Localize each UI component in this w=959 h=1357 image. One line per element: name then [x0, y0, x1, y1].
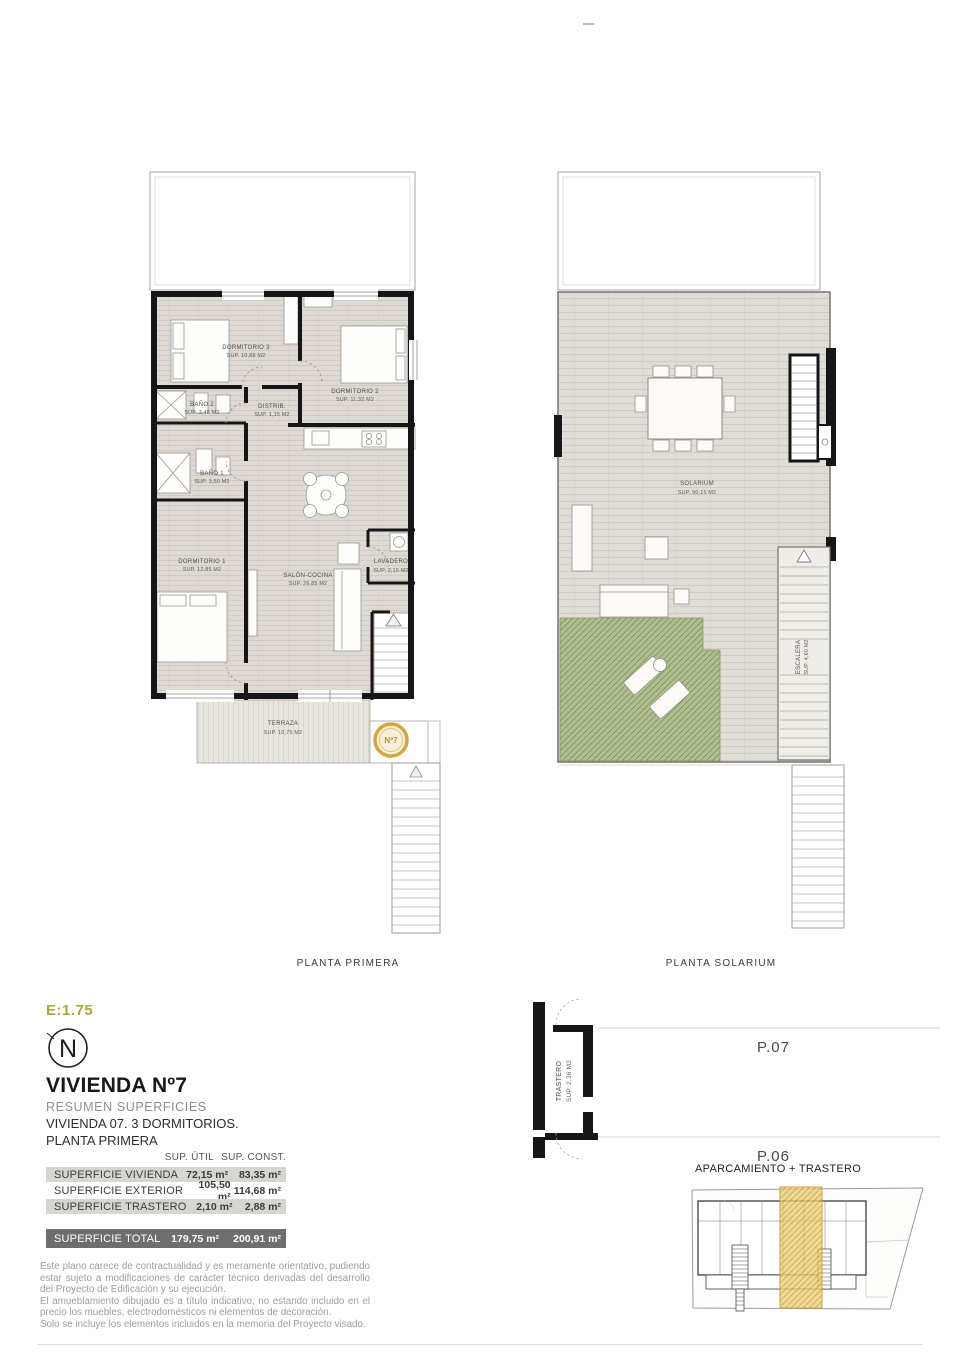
svg-text:SUP. 26,85 M2: SUP. 26,85 M2 [289, 581, 327, 587]
chair [675, 366, 691, 377]
svg-text:TRASTERO: TRASTERO [556, 1060, 563, 1101]
page-title: VIVIENDA Nº7 [46, 1074, 187, 1098]
escalera-strip: ESCALERA SUP. 4,60 M2 [778, 547, 830, 760]
room-label: BAÑO 2 [190, 401, 214, 408]
kitchen-sink [312, 431, 329, 445]
armchair [338, 543, 359, 564]
svg-text:SUP. 10,75 M2: SUP. 10,75 M2 [264, 730, 302, 736]
svg-text:SUP. 2,15 M2: SUP. 2,15 M2 [373, 568, 408, 574]
table-row: SUPERFICIE VIVIENDA 72,15 m² 83,35 m² [46, 1167, 286, 1182]
planter [572, 505, 592, 571]
summary-desc-1: VIVIENDA 07. 3 DORMITORIOS. [46, 1116, 239, 1131]
registration-mark [583, 23, 594, 25]
room-label: DORMITORIO 2 [331, 389, 379, 395]
sofa [334, 569, 361, 651]
trastero-drawing: TRASTERO SUP. 2,36 M2 P.07 P.06 [525, 995, 945, 1173]
table-total-row: SUPERFICIE TOTAL 179,75 m² 200,91 m² [46, 1229, 286, 1248]
chair [675, 440, 691, 451]
summary-desc-2: PLANTA PRIMERA [46, 1133, 158, 1148]
svg-text:SUP. 12,85 M2: SUP. 12,85 M2 [183, 567, 221, 573]
table-row: SUPERFICIE TRASTERO 2,10 m² 2,88 m² [46, 1199, 286, 1214]
plot-label-p07: P.07 [757, 1039, 790, 1056]
room-label: LAVADERO [374, 559, 408, 565]
plan-solarium-drawing: ESCALERA SUP. 4,60 M2 SOLARIUM SUP. 90,1… [540, 165, 860, 965]
room-label: DORMITORIO 3 [222, 345, 270, 351]
col-header-util: SUP. ÚTIL [150, 1152, 214, 1163]
chair [635, 396, 646, 412]
room-label: BAÑO 1 [200, 470, 224, 477]
aparcamiento-caption: APARCAMIENTO + TRASTERO [695, 1163, 945, 1175]
room-label: SALÓN-COCINA [283, 572, 332, 579]
exterior-stair [792, 765, 844, 928]
svg-text:SUP. 4,60 M2: SUP. 4,60 M2 [804, 639, 810, 674]
sink [196, 449, 212, 473]
dining-table [648, 378, 722, 439]
chair [697, 440, 713, 451]
plan-primera-drawing: DORMITORIO 3 SUP. 10,88 M2 DORMITORIO 2 … [138, 165, 460, 965]
summary-subtitle: RESUMEN SUPERFICIES [46, 1100, 207, 1114]
highlighted-unit-band [780, 1187, 822, 1308]
chair [653, 366, 669, 377]
scale-label: E:1.75 [46, 1002, 93, 1019]
room-label: TERRAZA [268, 721, 298, 727]
trastero-label: TRASTERO SUP. 2,36 M2 [556, 1060, 573, 1102]
bottom-divider [38, 1344, 922, 1345]
svg-text:SUP. 2,36 M2: SUP. 2,36 M2 [566, 1060, 573, 1102]
room-label: DORMITORIO 1 [178, 559, 226, 565]
disclaimer-line: Solo se incluye los elementos incluidos … [40, 1319, 370, 1331]
sofa [600, 585, 668, 617]
chair [697, 366, 713, 377]
plan-solarium-caption: PLANTA SOLARIUM [636, 958, 806, 969]
chair [653, 440, 669, 451]
exterior-stair [392, 763, 440, 933]
upper-terrace-outline [558, 172, 820, 290]
col-header-const: SUP. CONST. [216, 1152, 286, 1163]
room-label: SOLARIUM [680, 481, 714, 487]
disclaimer-line: El amueblamiento dibujado es a título in… [40, 1296, 370, 1319]
svg-text:SUP. 90,15 M2: SUP. 90,15 M2 [678, 490, 716, 496]
tv-unit [248, 570, 257, 636]
disclaimer: Este plano carece de contractualidad y e… [40, 1261, 370, 1331]
side-table [674, 589, 689, 604]
round-table [654, 659, 667, 672]
wardrobe [284, 296, 298, 344]
svg-text:SUP. 3,50 M2: SUP. 3,50 M2 [194, 479, 229, 485]
svg-text:N: N [59, 1035, 77, 1063]
chair [724, 396, 735, 412]
side-table [645, 537, 668, 559]
plan-primera-caption: PLANTA PRIMERA [263, 958, 433, 969]
svg-text:SUP. 11,32 M2: SUP. 11,32 M2 [336, 397, 374, 403]
svg-text:SUP. 10,88 M2: SUP. 10,88 M2 [227, 353, 265, 359]
unit-number-badge: Nº7 [375, 724, 407, 756]
north-arrow-icon: N [44, 1024, 94, 1074]
svg-text:ESCALERA: ESCALERA [796, 640, 802, 674]
disclaimer-line: Este plano carece de contractualidad y e… [40, 1261, 370, 1296]
svg-text:Nº7: Nº7 [384, 736, 398, 745]
upper-terrace-outline [150, 172, 415, 290]
site-key-plan [680, 1185, 945, 1350]
interior-stair [374, 613, 413, 698]
hob [362, 431, 386, 447]
table-row: SUPERFICIE EXTERIOR 105,50 m² 114,68 m² [46, 1183, 286, 1198]
floor-plan-sheet: DORMITORIO 3 SUP. 10,88 M2 DORMITORIO 2 … [0, 0, 959, 1357]
room-label: DISTRIB. [258, 404, 286, 410]
svg-text:SUP. 1,15 M2: SUP. 1,15 M2 [254, 412, 289, 418]
svg-text:SUP. 3,45 M2: SUP. 3,45 M2 [184, 410, 219, 416]
